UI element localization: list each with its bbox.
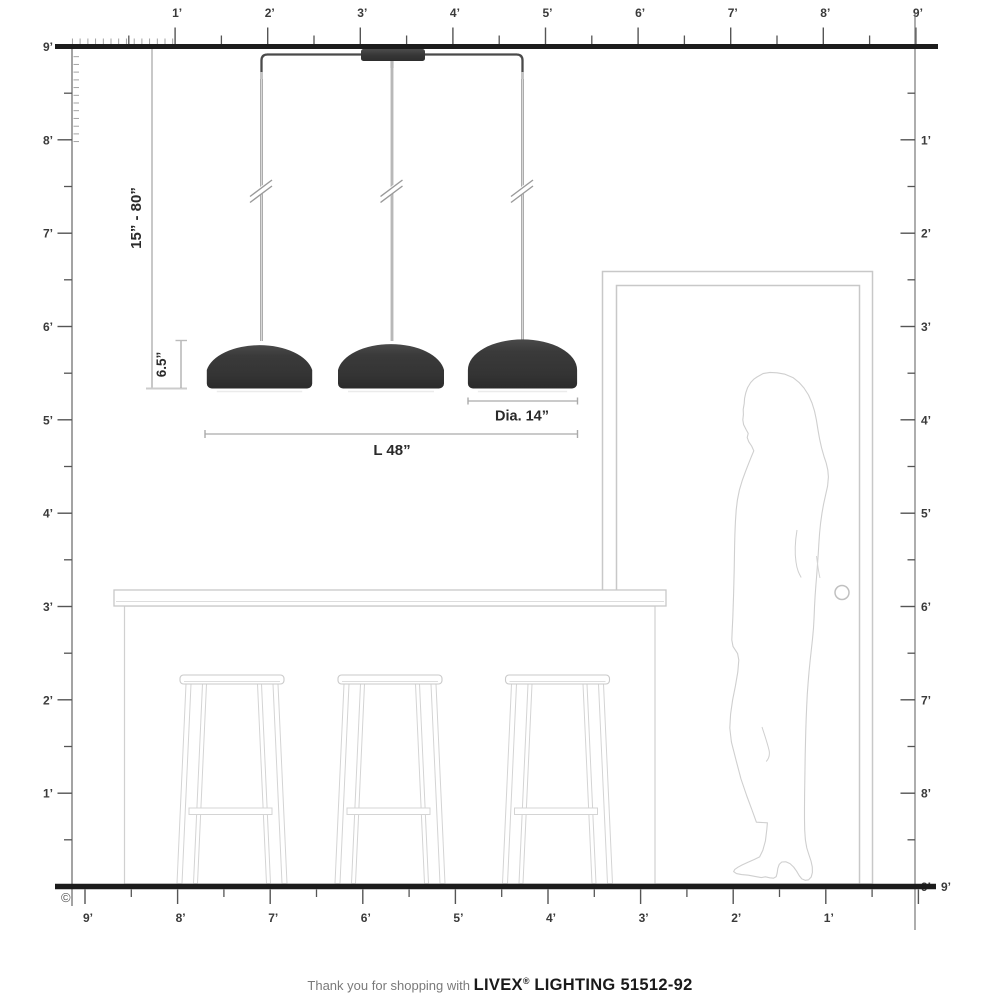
svg-text:6’: 6’ (635, 6, 645, 20)
svg-text:2’: 2’ (43, 693, 53, 707)
svg-text:4’: 4’ (43, 507, 53, 521)
svg-text:2’: 2’ (731, 911, 741, 925)
svg-text:2’: 2’ (265, 6, 275, 20)
svg-text:4’: 4’ (546, 911, 556, 925)
svg-text:5’: 5’ (43, 413, 53, 427)
svg-text:1’: 1’ (43, 787, 53, 801)
svg-text:Dia. 14”: Dia. 14” (495, 409, 549, 425)
svg-text:9’: 9’ (941, 880, 951, 894)
svg-text:L 48”: L 48” (373, 442, 410, 459)
svg-text:7’: 7’ (728, 6, 738, 20)
svg-text:3’: 3’ (639, 911, 649, 925)
svg-text:7’: 7’ (268, 911, 278, 925)
svg-text:2’: 2’ (921, 227, 931, 241)
svg-text:5’: 5’ (921, 507, 931, 521)
svg-text:15” - 80”: 15” - 80” (128, 187, 145, 249)
svg-text:7’: 7’ (921, 693, 931, 707)
svg-text:6’: 6’ (43, 320, 53, 334)
svg-text:3’: 3’ (43, 600, 53, 614)
svg-text:6.5”: 6.5” (154, 352, 169, 378)
svg-text:©: © (61, 890, 71, 905)
svg-text:8’: 8’ (176, 911, 186, 925)
svg-text:8’: 8’ (921, 787, 931, 801)
svg-text:8’: 8’ (43, 133, 53, 147)
svg-text:3’: 3’ (921, 320, 931, 334)
svg-text:6’: 6’ (361, 911, 371, 925)
svg-text:6’: 6’ (921, 600, 931, 614)
svg-text:5’: 5’ (542, 6, 552, 20)
svg-text:5’: 5’ (453, 911, 463, 925)
svg-text:4’: 4’ (921, 413, 931, 427)
svg-text:9’: 9’ (913, 6, 923, 20)
svg-text:1’: 1’ (824, 911, 834, 925)
svg-text:1’: 1’ (921, 133, 931, 147)
svg-text:9’: 9’ (83, 911, 93, 925)
svg-text:3’: 3’ (357, 6, 367, 20)
svg-text:4’: 4’ (450, 6, 460, 20)
svg-text:9’: 9’ (43, 40, 53, 54)
svg-text:1’: 1’ (172, 6, 182, 20)
svg-text:8’: 8’ (820, 6, 830, 20)
svg-text:7’: 7’ (43, 227, 53, 241)
